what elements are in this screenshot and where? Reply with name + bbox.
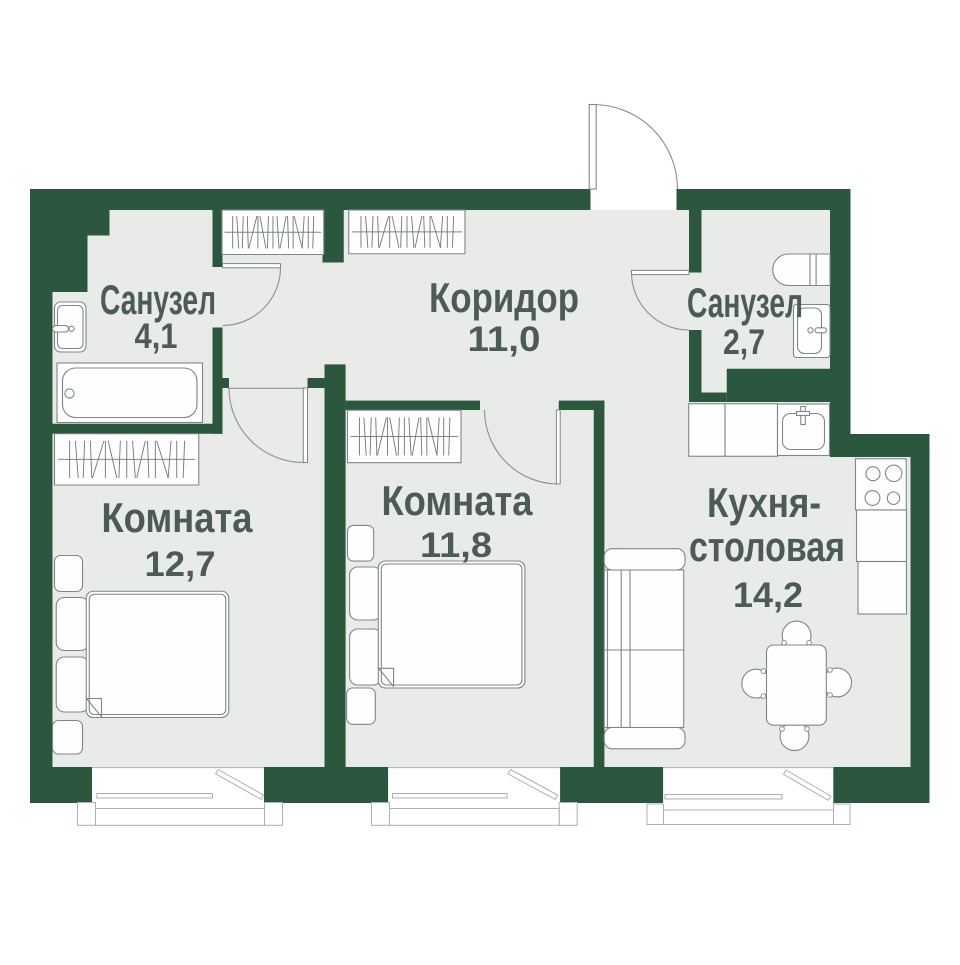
svg-text:Кухня-: Кухня- [707, 479, 821, 526]
svg-text:12,7: 12,7 [145, 545, 216, 584]
svg-text:Санузел: Санузел [100, 276, 216, 323]
svg-text:4,1: 4,1 [135, 317, 178, 356]
svg-text:Комната: Комната [382, 477, 534, 524]
svg-text:столовая: столовая [689, 523, 845, 570]
svg-text:11,0: 11,0 [468, 320, 541, 359]
svg-text:2,7: 2,7 [723, 323, 765, 362]
svg-text:Санузел: Санузел [687, 279, 803, 326]
svg-text:Коридор: Коридор [429, 274, 579, 321]
svg-text:11,8: 11,8 [420, 526, 492, 565]
svg-text:14,2: 14,2 [733, 576, 803, 615]
svg-text:Комната: Комната [102, 494, 254, 541]
